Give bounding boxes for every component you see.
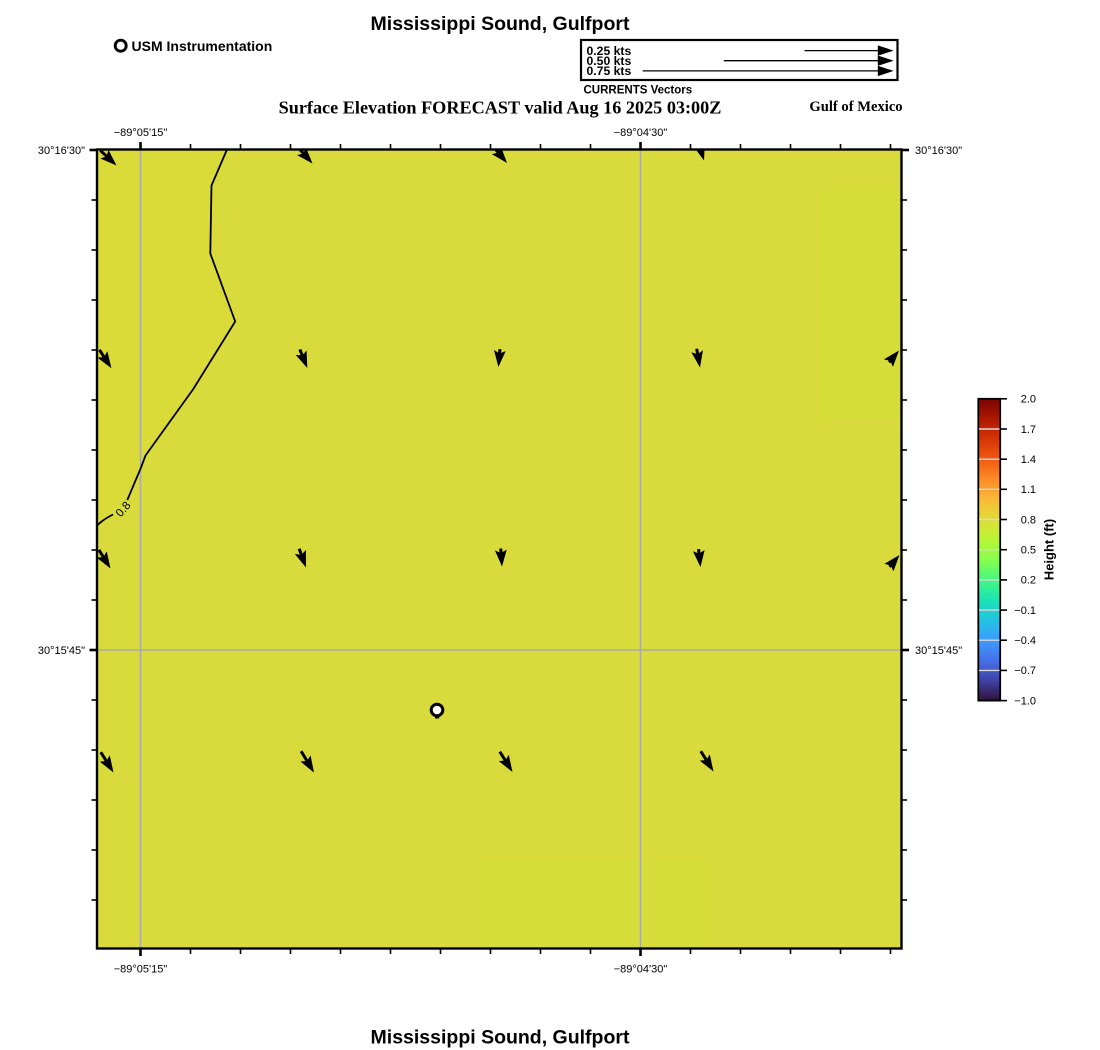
svg-text:−89°05'15": −89°05'15" <box>114 964 168 976</box>
svg-text:0.75 kts: 0.75 kts <box>587 64 632 78</box>
svg-text:0.5: 0.5 <box>1021 545 1036 557</box>
svg-text:−0.1: −0.1 <box>1014 605 1036 617</box>
svg-text:2.0: 2.0 <box>1021 394 1036 406</box>
svg-text:1.1: 1.1 <box>1021 484 1036 496</box>
svg-text:30°15'45": 30°15'45" <box>915 645 962 657</box>
svg-text:1.7: 1.7 <box>1021 424 1036 436</box>
svg-text:30°15'45": 30°15'45" <box>38 645 85 657</box>
svg-text:−0.4: −0.4 <box>1014 635 1036 647</box>
svg-text:USM Instrumentation: USM Instrumentation <box>132 38 273 54</box>
svg-text:1.4: 1.4 <box>1021 454 1036 466</box>
svg-text:−0.7: −0.7 <box>1014 665 1036 677</box>
svg-text:Gulf of Mexico: Gulf of Mexico <box>809 99 902 115</box>
svg-text:−89°04'30": −89°04'30" <box>614 127 668 139</box>
svg-text:−1.0: −1.0 <box>1014 695 1036 707</box>
svg-text:−89°05'15": −89°05'15" <box>114 127 168 139</box>
svg-text:CURRENTS Vectors: CURRENTS Vectors <box>584 85 693 97</box>
svg-text:0.2: 0.2 <box>1021 575 1036 587</box>
svg-text:30°16'30": 30°16'30" <box>38 145 85 157</box>
svg-text:30°16'30": 30°16'30" <box>915 145 962 157</box>
svg-text:0.8: 0.8 <box>1021 514 1036 526</box>
svg-text:Mississippi Sound, Gulfport: Mississippi Sound, Gulfport <box>371 1027 630 1049</box>
svg-text:Surface Elevation FORECAST val: Surface Elevation FORECAST valid Aug 16 … <box>279 98 722 118</box>
svg-text:Mississippi Sound, Gulfport: Mississippi Sound, Gulfport <box>371 13 630 35</box>
svg-text:−89°04'30": −89°04'30" <box>614 964 668 976</box>
svg-text:Height (ft): Height (ft) <box>1042 519 1057 580</box>
